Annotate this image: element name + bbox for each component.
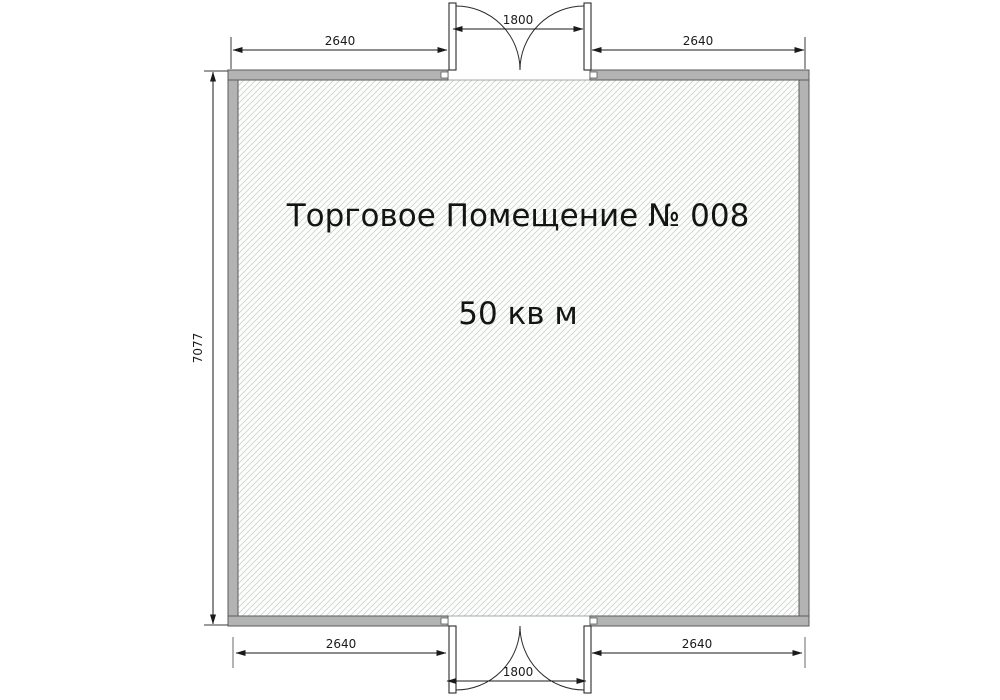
door-bottom-left-leaf <box>449 626 456 693</box>
room-floor <box>238 80 799 616</box>
floor-plan-page: 2640 1800 2640 7077 2640 1800 2640 Торго… <box>0 0 1000 700</box>
dim-label-bottom-left: 2640 <box>326 637 357 651</box>
room-area-label: 50 кв м <box>458 296 578 332</box>
wall-top-right-segment <box>590 70 809 80</box>
jamb-bottom-left <box>441 618 448 624</box>
dim-label-bottom-right: 2640 <box>682 637 713 651</box>
room-title: Торговое Помещение № 008 <box>286 198 750 234</box>
dim-label-top-right: 2640 <box>683 34 714 48</box>
wall-bottom-left-segment <box>228 616 448 626</box>
jamb-top-right <box>590 72 597 78</box>
wall-top-left-segment <box>228 70 448 80</box>
door-bottom <box>449 626 591 693</box>
jamb-bottom-right <box>590 618 597 624</box>
floor-plan-drawing: 2640 1800 2640 7077 2640 1800 2640 Торго… <box>0 0 1000 700</box>
door-bottom-right-swing-arc <box>520 626 584 690</box>
wall-right <box>799 70 809 626</box>
door-bottom-right-leaf <box>584 626 591 693</box>
door-bottom-left-swing-arc <box>456 626 520 690</box>
dim-label-side-height: 7077 <box>191 333 205 364</box>
dim-label-top-door: 1800 <box>503 13 534 27</box>
door-top-right-leaf <box>584 3 591 70</box>
door-top-left-leaf <box>449 3 456 70</box>
jamb-top-left <box>441 72 448 78</box>
wall-bottom-right-segment <box>590 616 809 626</box>
dim-label-bottom-door: 1800 <box>503 665 534 679</box>
dim-label-top-left: 2640 <box>325 34 356 48</box>
wall-left <box>228 70 238 626</box>
